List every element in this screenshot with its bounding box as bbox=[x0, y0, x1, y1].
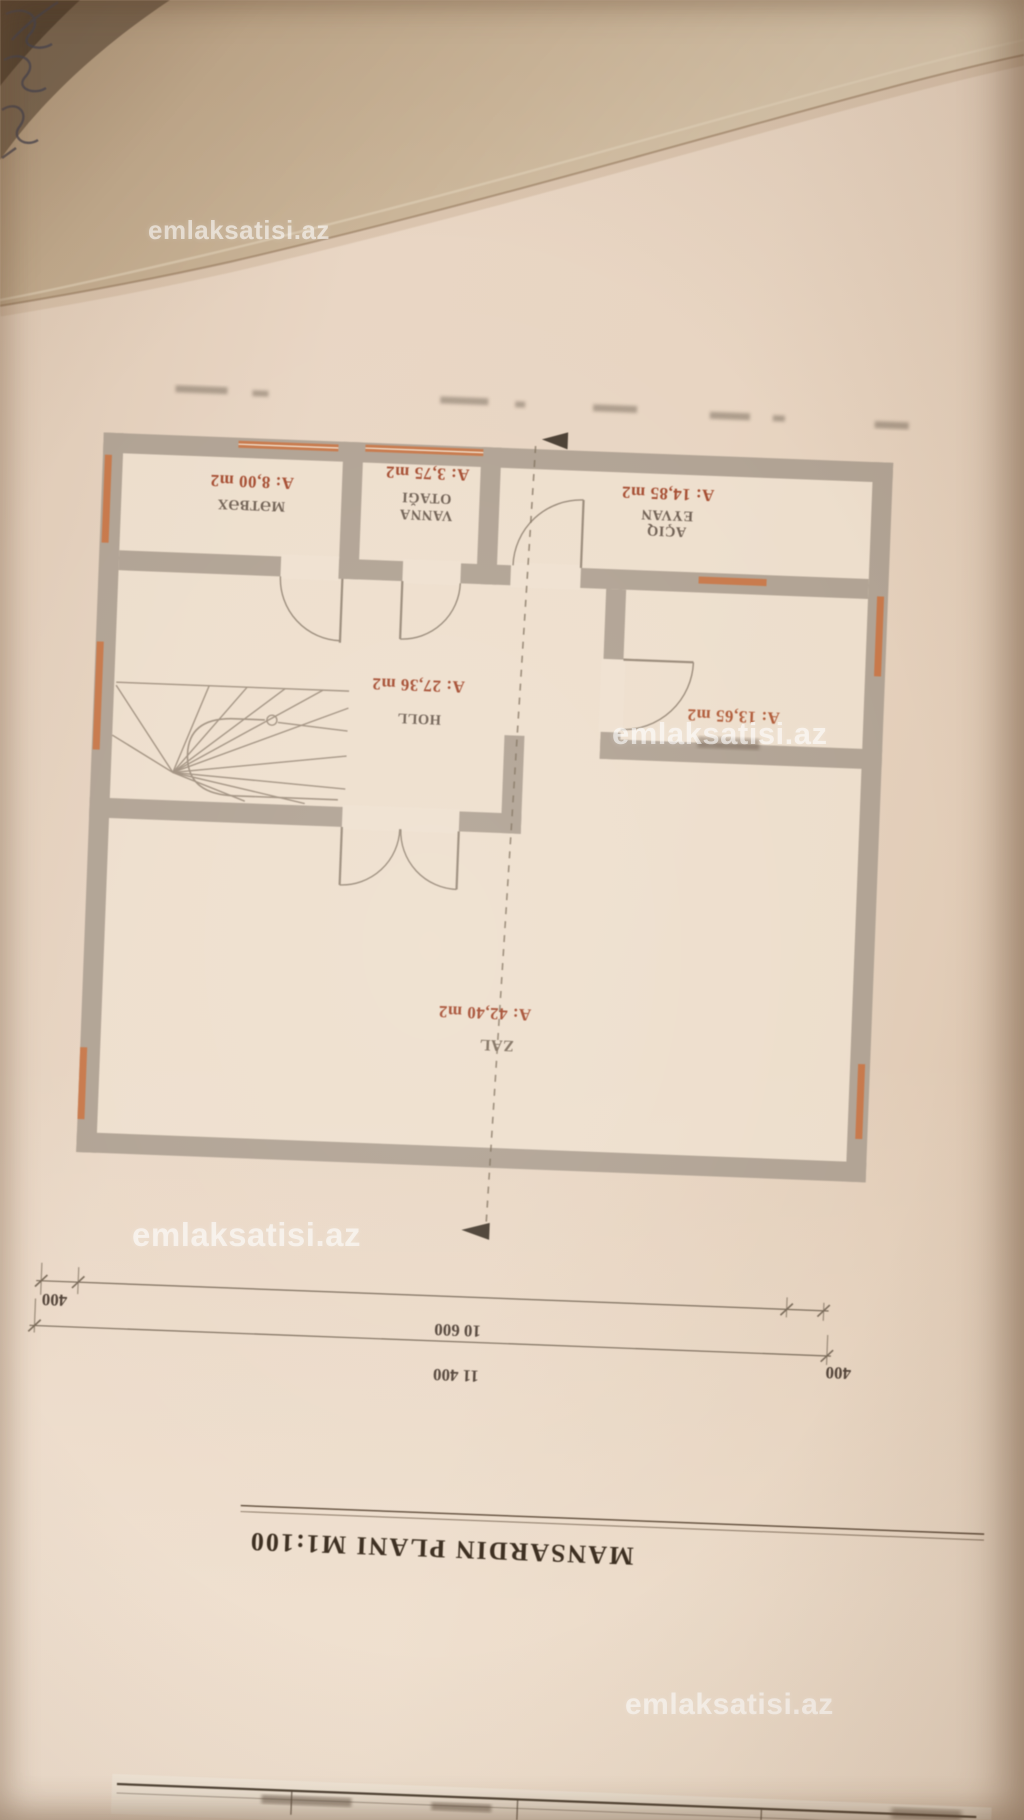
dim-guide bbox=[823, 1303, 824, 1321]
room-hall-area: A: 27,36 m2 bbox=[372, 674, 466, 697]
faint-text-row bbox=[175, 385, 909, 429]
dim-guide bbox=[827, 1335, 828, 1365]
dim-line-inner bbox=[36, 1281, 828, 1311]
section-arrow-bottom bbox=[461, 1222, 490, 1240]
room-zal-area: A: 42,40 m2 bbox=[438, 1002, 532, 1025]
dim-left-offset: 400 bbox=[41, 1290, 67, 1310]
floor-plan-drawing: A: 8,00 m2 MƏTBƏX A: 3,75 m2 OTAĞI VANNA… bbox=[0, 0, 1024, 1820]
door-gap bbox=[402, 559, 461, 585]
dimension-labels: 400 10 600 11 400 400 bbox=[39, 1290, 853, 1400]
sheet-table-edge bbox=[111, 1774, 992, 1820]
text-smudge bbox=[593, 404, 637, 413]
room-balcony-name-2: EYVAN bbox=[641, 506, 694, 524]
dim-guides bbox=[34, 1263, 829, 1365]
wall-connector bbox=[501, 735, 525, 834]
watermark: emlaksatisi.az bbox=[132, 1216, 361, 1254]
room-bath-area: A: 3,75 m2 bbox=[385, 462, 470, 484]
page-curl-top bbox=[0, 0, 1024, 312]
door-gap bbox=[510, 562, 581, 590]
floor-plan-photo: A: 8,00 m2 MƏTBƏX A: 3,75 m2 OTAĞI VANNA… bbox=[0, 0, 1024, 1820]
text-smudge bbox=[252, 390, 268, 397]
watermark: emlaksatisi.az bbox=[148, 215, 330, 246]
watermark: emlaksatisi.az bbox=[612, 716, 828, 752]
text-smudge bbox=[875, 421, 909, 429]
dim-guide bbox=[78, 1267, 79, 1294]
title-block: MANSARDIN PLANI M1:100 bbox=[239, 1506, 984, 1585]
curled-page bbox=[0, 0, 1024, 306]
dim-guide bbox=[34, 1299, 35, 1333]
text-smudge bbox=[515, 401, 525, 407]
watermark: emlaksatisi.az bbox=[625, 1688, 834, 1722]
dim-guide bbox=[41, 1263, 42, 1295]
room-bath-name-2: OTAĞI bbox=[401, 489, 451, 508]
section-arrow-top bbox=[542, 431, 569, 449]
text-smudge bbox=[710, 412, 750, 421]
title-rule bbox=[241, 1506, 984, 1535]
room-hall-name: HOLL bbox=[397, 710, 441, 728]
dim-line-total bbox=[29, 1325, 830, 1356]
dim-guide bbox=[786, 1297, 787, 1317]
dimension-lines bbox=[28, 1262, 835, 1365]
door-gap bbox=[280, 554, 339, 580]
dim-total-width: 11 400 bbox=[433, 1365, 480, 1386]
room-bath-name-1: VANNA bbox=[399, 506, 453, 524]
room-kitchen-area: A: 8,00 m2 bbox=[210, 471, 295, 493]
room-zal-name: ZAL bbox=[479, 1036, 514, 1054]
dim-ticks bbox=[28, 1274, 835, 1362]
dim-right-offset: 400 bbox=[825, 1363, 851, 1383]
text-smudge bbox=[773, 415, 785, 421]
text-smudge bbox=[440, 396, 488, 405]
room-balcony-name-1: AÇIQ bbox=[646, 522, 686, 540]
table-divider bbox=[761, 1810, 762, 1820]
text-smudge bbox=[175, 385, 227, 394]
table-divider bbox=[517, 1799, 518, 1820]
room-kitchen-name: MƏTBƏX bbox=[217, 496, 286, 515]
plan-title: MANSARDIN PLANI M1:100 bbox=[248, 1527, 634, 1571]
door-gap bbox=[342, 805, 460, 833]
dim-inner-width: 10 600 bbox=[434, 1320, 481, 1341]
room-balcony-area: A: 14,85 m2 bbox=[621, 483, 715, 506]
plan-sheet: A: 8,00 m2 MƏTBƏX A: 3,75 m2 OTAĞI VANNA… bbox=[10, 381, 1024, 1820]
